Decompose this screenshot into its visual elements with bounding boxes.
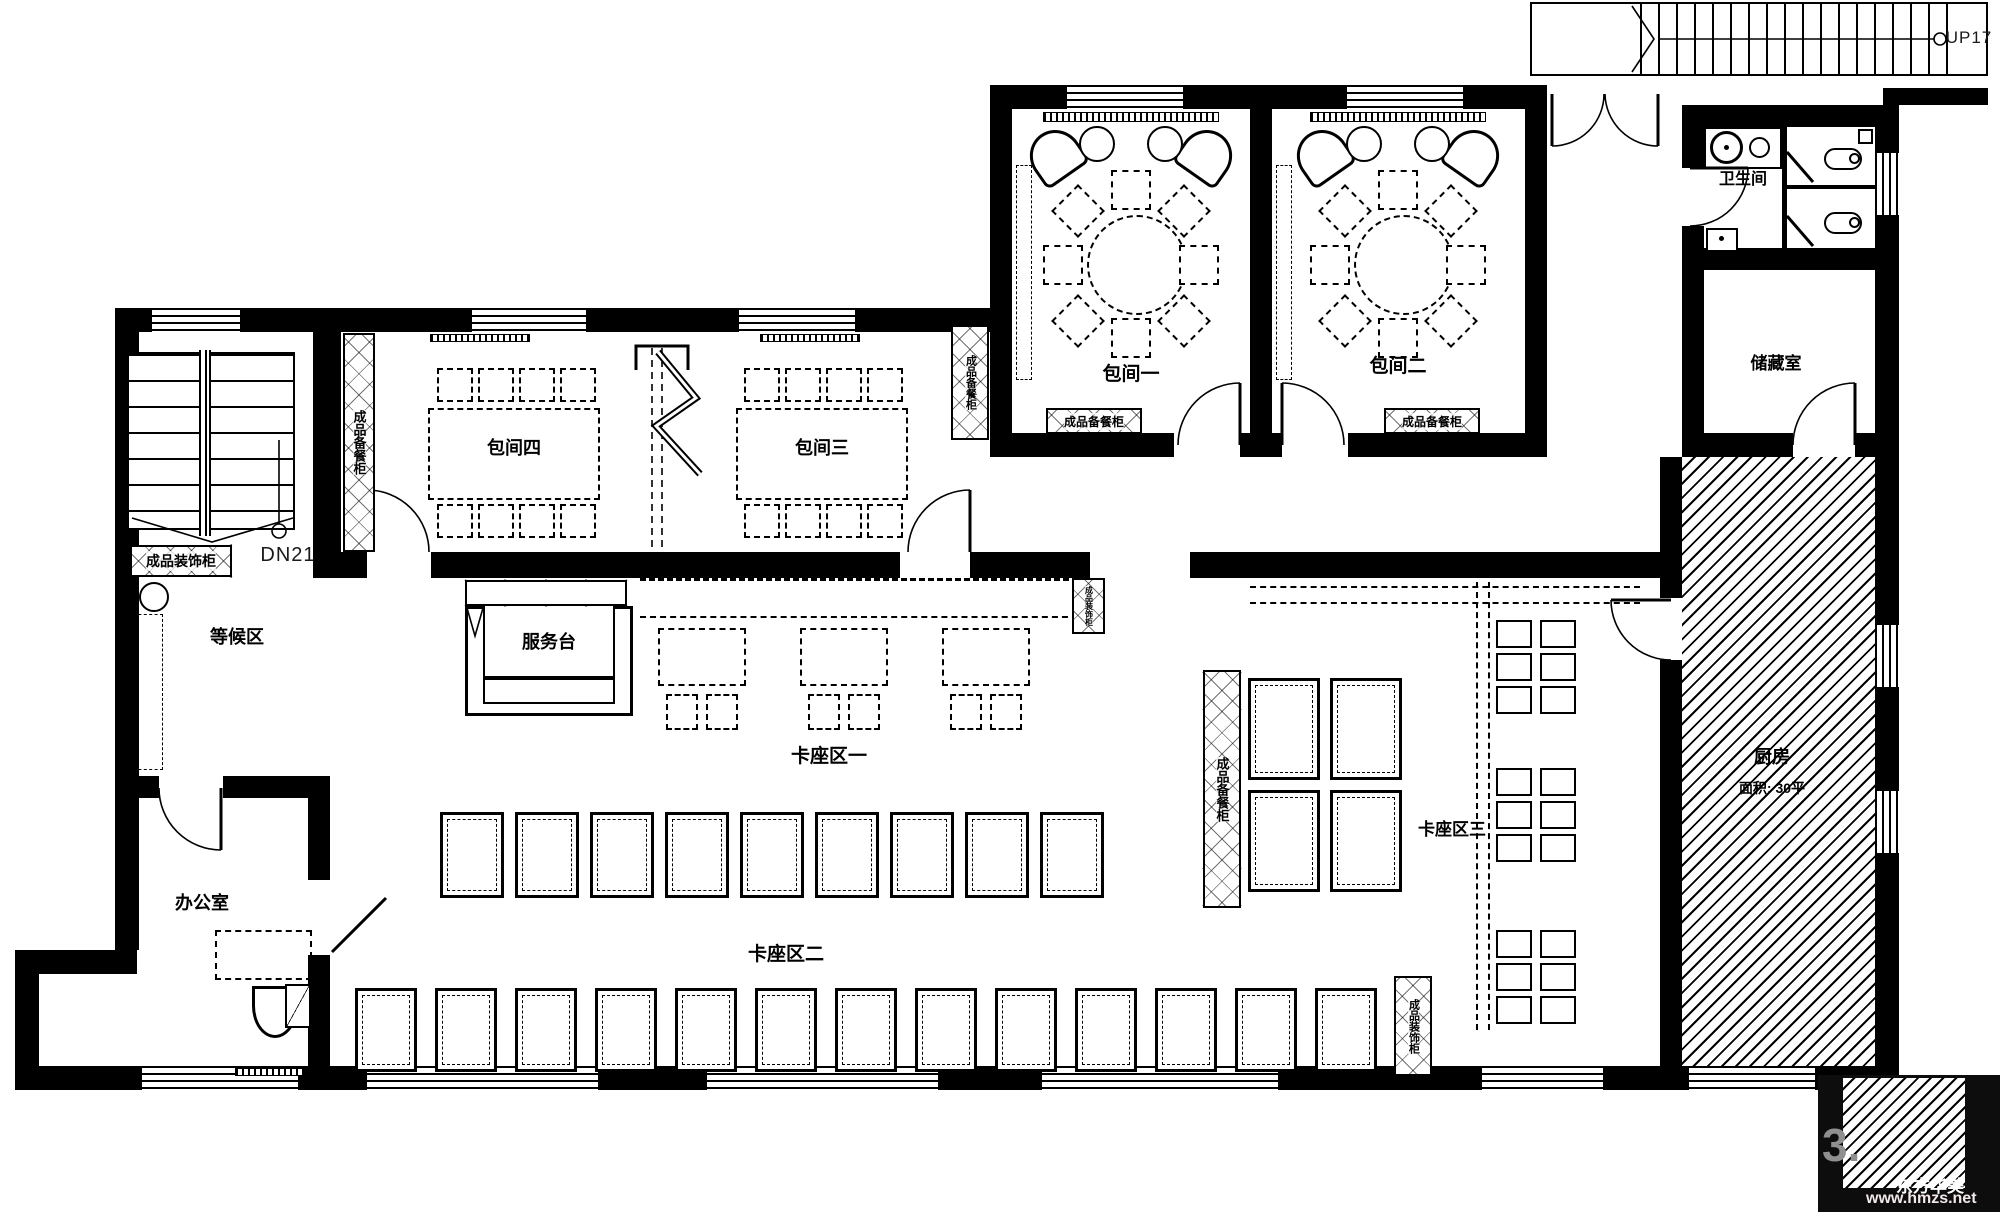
wall — [242, 308, 470, 332]
dining-table — [658, 628, 746, 686]
dining-chair — [1318, 184, 1372, 238]
wall-bench — [1016, 165, 1032, 380]
wall — [990, 85, 1012, 457]
booth3-label: 卡座区三 — [1402, 816, 1502, 838]
wall — [1855, 433, 1875, 457]
armchair — [1171, 120, 1242, 191]
stair-down-label: DN21 — [246, 544, 330, 566]
deco-cabinet: 成品装饰柜 — [1072, 578, 1105, 634]
restroom-sink-dot — [1724, 145, 1729, 150]
toilet-flush — [1849, 217, 1860, 228]
dining-chair — [867, 504, 903, 538]
room2-label: 包间二 — [1338, 352, 1458, 376]
dining-chair — [478, 504, 514, 538]
door-arc — [1605, 94, 1658, 146]
service-desk-back-cabinet — [465, 580, 627, 606]
wall — [1605, 1066, 1687, 1090]
bar-counter-line — [640, 578, 1078, 581]
window — [1875, 789, 1899, 855]
door-arc — [908, 490, 970, 552]
staircase-up-treads — [1640, 4, 1948, 74]
dining-seat — [1496, 620, 1532, 648]
wall — [1875, 217, 1899, 623]
kitchen-label: 厨房 — [1724, 744, 1820, 768]
restroom-label: 卫生间 — [1700, 166, 1786, 188]
prep-cabinet: 成品备餐柜 — [1203, 670, 1241, 908]
wall — [115, 776, 159, 798]
dining-seat — [1496, 963, 1532, 991]
dining-chair — [1111, 318, 1151, 358]
dining-chair — [1446, 245, 1486, 285]
prep-cabinet-label: 成品备餐柜 — [1064, 413, 1124, 430]
wall — [1875, 855, 1899, 1090]
armchair — [1438, 120, 1509, 191]
stool — [848, 694, 880, 730]
wall — [1240, 433, 1282, 457]
dining-chair — [1051, 294, 1105, 348]
service-desk-label: 服务台 — [487, 628, 611, 654]
door-arc — [1552, 94, 1604, 146]
stall-door — [1787, 152, 1813, 182]
booth-seat — [740, 812, 804, 898]
dining-seat — [1540, 620, 1576, 648]
window — [1875, 151, 1899, 217]
wall — [1875, 689, 1899, 789]
wall — [1682, 105, 1875, 127]
booth-seat — [515, 812, 579, 898]
booth-sofa — [1330, 678, 1402, 780]
dining-seat — [1496, 768, 1532, 796]
door-arc — [1282, 383, 1344, 445]
booth-seat — [915, 988, 977, 1072]
wall — [308, 798, 330, 880]
window — [470, 308, 588, 332]
deco-cabinet: 成品装饰柜 — [1394, 976, 1432, 1076]
dining-seat — [1496, 834, 1532, 862]
dining-chair — [560, 504, 596, 538]
booth-seat — [755, 988, 817, 1072]
booth-seat — [590, 812, 654, 898]
booth-seat — [965, 812, 1029, 898]
restroom-mirror — [1749, 137, 1770, 158]
window — [150, 308, 242, 332]
dining-seat — [1540, 930, 1576, 958]
booth-seat — [1315, 988, 1377, 1072]
dining-chair — [1179, 245, 1219, 285]
dining-seat — [1540, 768, 1576, 796]
window — [705, 1066, 940, 1090]
wall — [990, 433, 1174, 457]
dining-chair — [826, 368, 862, 402]
window — [1875, 623, 1899, 689]
watermark-url: www.hmzs.net — [1866, 1190, 1977, 1208]
wall — [1682, 433, 1793, 457]
booth-sofa — [1330, 790, 1402, 892]
door-leaf — [332, 898, 386, 952]
bench-back-line — [1250, 602, 1640, 604]
door-arc — [1178, 383, 1240, 445]
dining-chair — [1378, 170, 1418, 210]
wall — [1875, 105, 1899, 151]
corner-fixture — [1858, 129, 1873, 144]
dining-seat — [1540, 996, 1576, 1024]
wall — [223, 776, 330, 798]
service-desk-front — [483, 678, 615, 704]
booth-seat — [1155, 988, 1217, 1072]
booth-seat — [1040, 812, 1104, 898]
booth-seat — [1075, 988, 1137, 1072]
booth-seat — [675, 988, 737, 1072]
dining-seat — [1540, 686, 1576, 714]
booth1-label: 卡座区一 — [768, 742, 890, 766]
dining-chair — [1051, 184, 1105, 238]
stool — [950, 694, 982, 730]
watermark-number: 3. — [1822, 1118, 1860, 1172]
booth-sofa — [1248, 790, 1320, 892]
dining-seat — [1540, 963, 1576, 991]
wall — [313, 308, 341, 578]
dining-seat — [1540, 834, 1576, 862]
waiting-area-label: 等候区 — [178, 624, 296, 648]
dining-chair — [744, 368, 780, 402]
dining-table — [942, 628, 1030, 686]
side-table — [1414, 126, 1450, 162]
wall — [1348, 433, 1547, 457]
dining-seat — [1496, 653, 1532, 681]
partition-pocket — [636, 346, 688, 370]
door-arc — [159, 788, 221, 850]
mop-sink-dot — [1719, 236, 1724, 241]
curtain-strip — [235, 1068, 305, 1076]
stool — [666, 694, 698, 730]
curtain-strip — [760, 334, 860, 342]
folding-partition — [656, 352, 700, 474]
dining-seat — [1540, 801, 1576, 829]
booth-seat — [515, 988, 577, 1072]
prep-cabinet-label: 成品备餐柜 — [1402, 413, 1462, 430]
dining-seat — [1496, 686, 1532, 714]
office-desk — [215, 930, 312, 980]
bench-back-line — [1250, 586, 1640, 588]
dining-chair — [867, 368, 903, 402]
dining-chair — [437, 368, 473, 402]
door-arc — [367, 490, 429, 552]
waiting-bench — [133, 614, 163, 770]
prep-cabinet: 成品备餐柜 — [1384, 408, 1480, 434]
deco-cabinet-label: 成品装饰柜 — [1085, 586, 1093, 626]
wall — [1280, 1066, 1480, 1090]
dining-chair — [1310, 245, 1350, 285]
round-table — [1087, 215, 1187, 315]
dining-chair — [785, 368, 821, 402]
dining-chair — [519, 504, 555, 538]
room1-label: 包间一 — [1071, 360, 1191, 384]
window — [1687, 1066, 1817, 1090]
wall — [588, 308, 737, 332]
dining-chair — [744, 504, 780, 538]
side-table — [1346, 126, 1382, 162]
wall — [1682, 105, 1704, 168]
dining-chair — [560, 368, 596, 402]
curtain-strip — [430, 334, 530, 342]
prep-cabinet: 成品备餐柜 — [1046, 408, 1142, 434]
armchair — [1286, 120, 1357, 191]
wall — [1190, 552, 1660, 578]
booth-seat — [435, 988, 497, 1072]
stair-rail — [199, 350, 211, 536]
folding-partition-inner — [656, 352, 700, 474]
window — [1065, 85, 1185, 109]
side-table — [1147, 126, 1183, 162]
dining-chair — [1111, 170, 1151, 210]
wall — [1883, 88, 1988, 105]
dining-seat — [1496, 930, 1532, 958]
booth-seat — [440, 812, 504, 898]
side-table — [1079, 126, 1115, 162]
wall-bench — [1276, 165, 1292, 380]
deco-cabinet-label: 成品装饰柜 — [1408, 999, 1419, 1054]
booth2-label: 卡座区二 — [725, 940, 847, 964]
prep-cabinet-label: 成品备餐柜 — [353, 410, 366, 475]
window — [1345, 85, 1465, 109]
prep-cabinet: 成品备餐柜 — [951, 325, 989, 440]
office-label: 办公室 — [146, 890, 258, 914]
wall — [1660, 457, 1682, 598]
stool — [990, 694, 1022, 730]
dining-chair — [1318, 294, 1372, 348]
booth-seat — [355, 988, 417, 1072]
room4-label: 包间四 — [452, 435, 576, 459]
dining-chair — [785, 504, 821, 538]
round-table — [1354, 215, 1454, 315]
prep-cabinet-label: 成品备餐柜 — [965, 355, 976, 410]
waiting-table — [139, 582, 169, 612]
window — [1480, 1066, 1605, 1090]
curtain-strip — [1310, 112, 1486, 122]
door-arc — [1793, 383, 1855, 445]
wall — [15, 1066, 140, 1090]
storage-label: 储藏室 — [1716, 350, 1836, 372]
stool — [706, 694, 738, 730]
bar-counter-line — [640, 616, 1078, 618]
prep-cabinet: 成品备餐柜 — [343, 333, 375, 552]
floor-plan: UP17 — [0, 0, 2000, 1212]
booth-seat — [1235, 988, 1297, 1072]
wall — [970, 552, 1090, 578]
room3-label: 包间三 — [760, 435, 884, 459]
prep-cabinet-label: 成品备餐柜 — [1216, 757, 1229, 822]
deco-cabinet-label: 成品装饰柜 — [146, 551, 216, 571]
deco-cabinet: 成品装饰柜 — [130, 545, 232, 577]
kitchen-area-label: 面积: 30平 — [1700, 778, 1844, 798]
booth-seat — [995, 988, 1057, 1072]
bench-back-line — [1476, 582, 1478, 1030]
staircase-down — [127, 352, 295, 530]
dining-chair — [437, 504, 473, 538]
dining-seat — [1496, 996, 1532, 1024]
dining-seat — [1540, 653, 1576, 681]
dining-chair — [519, 368, 555, 402]
dining-chair — [478, 368, 514, 402]
bench-back-line — [1488, 582, 1490, 1030]
stool — [808, 694, 840, 730]
wall — [1660, 660, 1682, 1066]
dining-table — [800, 628, 888, 686]
curtain-strip — [1043, 112, 1219, 122]
stair-up-label: UP17 — [1944, 28, 1994, 48]
wall — [1682, 270, 1704, 457]
toilet-flush — [1849, 153, 1860, 164]
window — [737, 308, 857, 332]
wall — [431, 552, 900, 578]
office-cabinet — [285, 984, 311, 1028]
stall-divider — [1787, 185, 1875, 189]
booth-seat — [890, 812, 954, 898]
door-arc — [1611, 600, 1671, 660]
booth-seat — [815, 812, 879, 898]
booth-seat — [665, 812, 729, 898]
booth-seat — [835, 988, 897, 1072]
wall — [1525, 85, 1547, 457]
wall — [1250, 85, 1272, 457]
booth-sofa — [1248, 678, 1320, 780]
dining-chair — [1043, 245, 1083, 285]
dining-chair — [826, 504, 862, 538]
stall-door — [1787, 216, 1813, 246]
booth-seat — [595, 988, 657, 1072]
